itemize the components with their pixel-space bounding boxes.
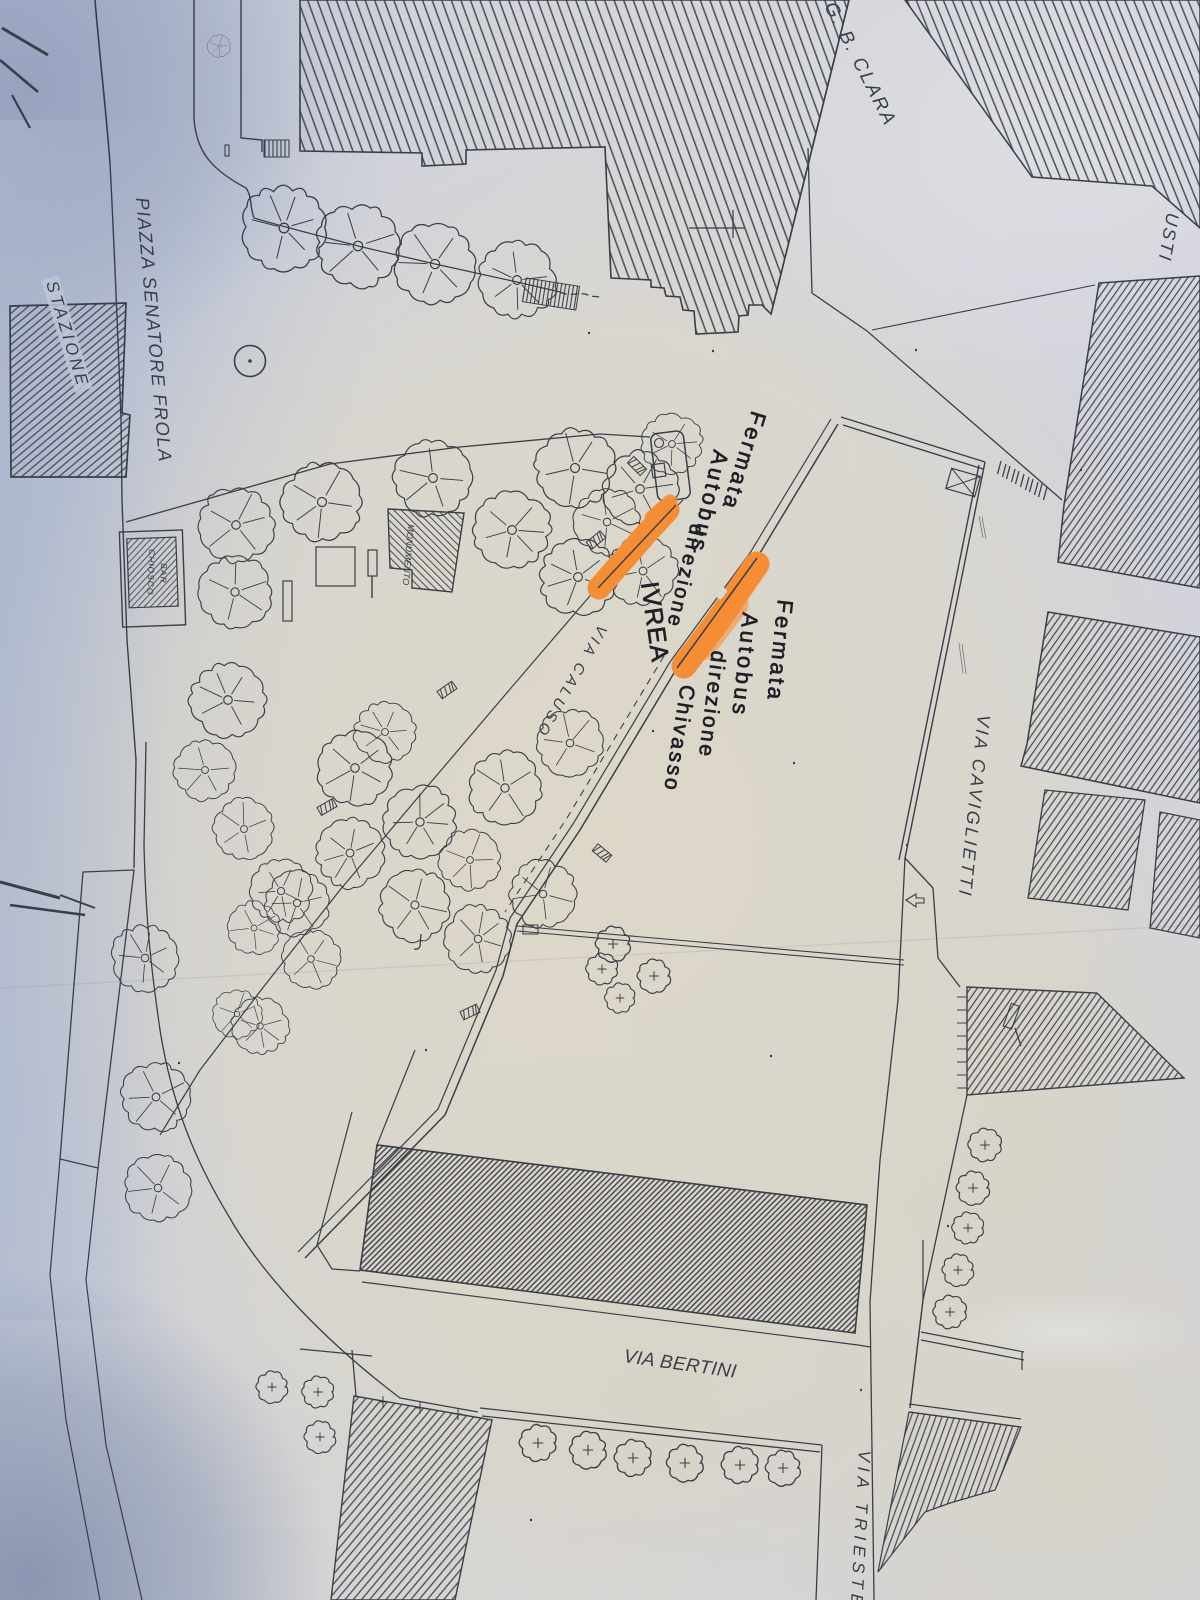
svg-text:BAR: BAR <box>158 563 169 583</box>
svg-text:CHIOSCO: CHIOSCO <box>145 549 157 595</box>
